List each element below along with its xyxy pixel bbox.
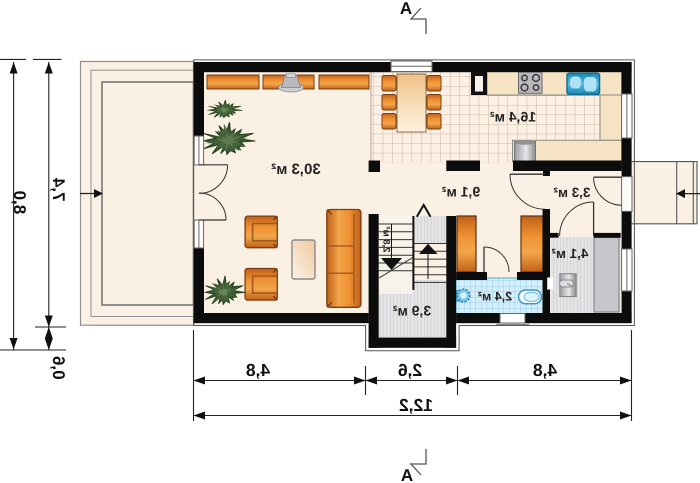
svg-text:8,0: 8,0 bbox=[10, 191, 29, 215]
svg-text:2,8 м²: 2,8 м² bbox=[381, 226, 392, 252]
svg-text:4,8: 4,8 bbox=[246, 360, 271, 380]
svg-text:A: A bbox=[401, 466, 413, 483]
svg-text:3,9 м²: 3,9 м² bbox=[392, 303, 431, 319]
svg-text:16,4 м²: 16,4 м² bbox=[490, 109, 536, 125]
svg-text:30,3 м²: 30,3 м² bbox=[271, 161, 320, 178]
svg-text:2,6: 2,6 bbox=[398, 360, 423, 380]
svg-text:0,6: 0,6 bbox=[49, 356, 68, 380]
svg-text:12,2: 12,2 bbox=[399, 395, 433, 415]
svg-text:4,8: 4,8 bbox=[533, 360, 558, 380]
svg-text:2,4 м²: 2,4 м² bbox=[478, 290, 512, 304]
svg-text:3,3 м²: 3,3 м² bbox=[553, 185, 591, 200]
svg-text:9,1 м²: 9,1 м² bbox=[441, 184, 480, 200]
svg-text:4,1 м²: 4,1 м² bbox=[551, 246, 589, 261]
svg-text:7,4: 7,4 bbox=[49, 177, 68, 201]
svg-text:A: A bbox=[400, 0, 412, 18]
